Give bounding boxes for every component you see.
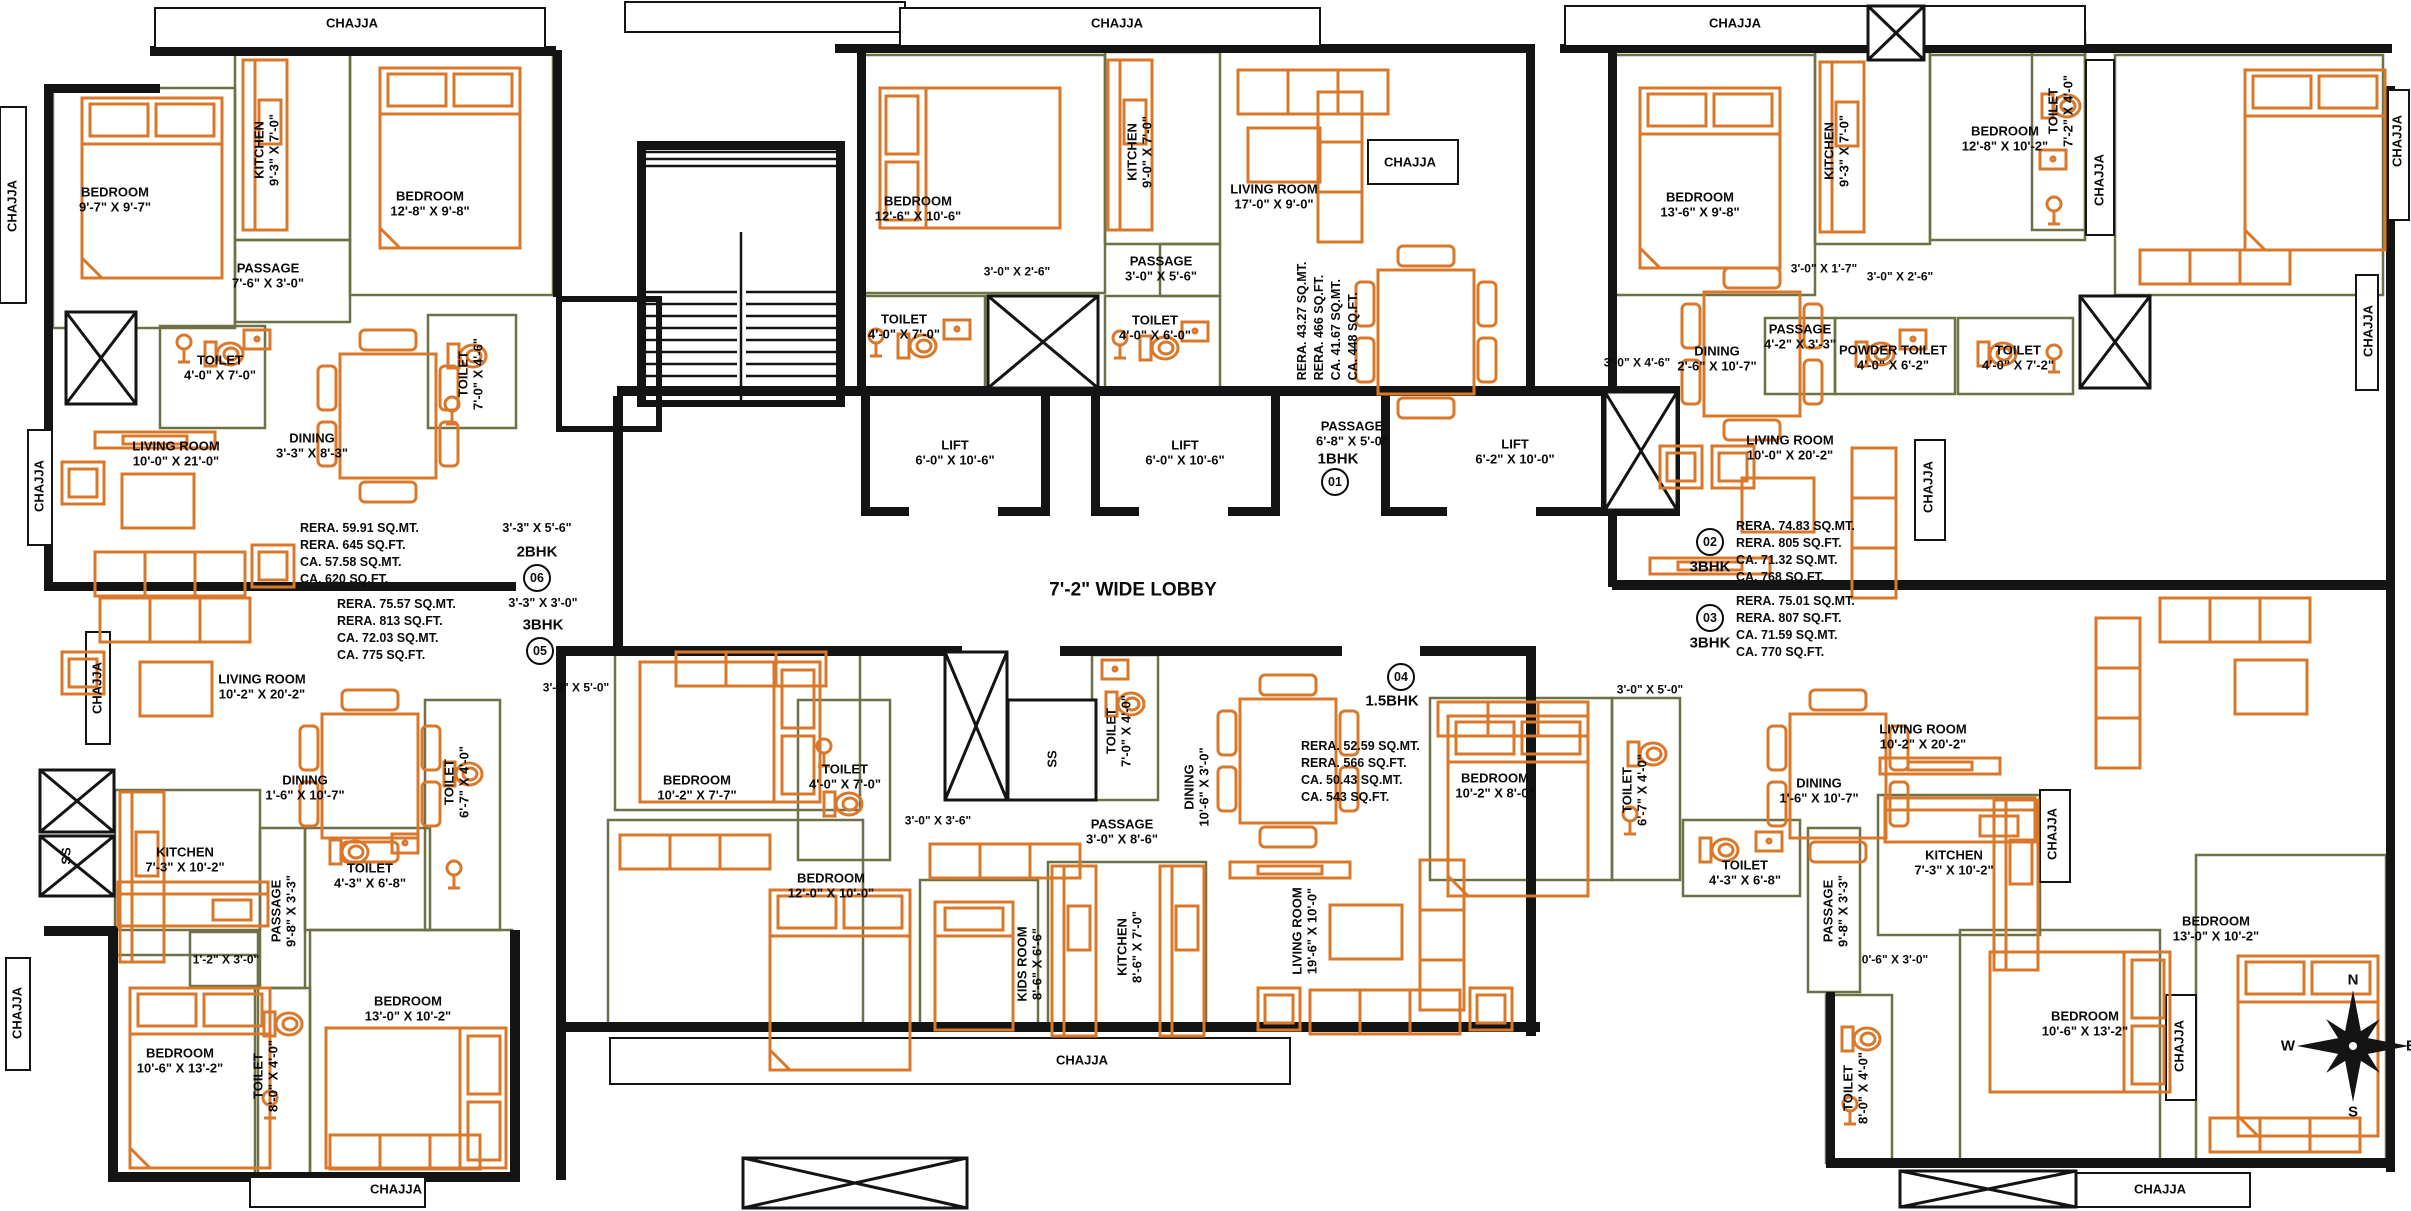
room-toilet: TOILET8'-0" X 4'-0": [1841, 1052, 1870, 1124]
room-toilet: TOILET4'-3" X 6'-8": [1709, 858, 1781, 887]
unit-type-01: 1BHK: [1318, 451, 1359, 468]
lobby-label: 7'-2" WIDE LOBBY: [1049, 579, 1217, 600]
dim: 3'-0" X 3'-6": [905, 814, 971, 827]
chajja: CHAJJA: [2362, 305, 2377, 357]
unit-type-04: 1.5BHK: [1365, 693, 1418, 710]
dim: 1'-2" X 3'-0": [193, 953, 259, 966]
room-living: LIVING ROOM10'-2" X 20'-2": [1879, 722, 1966, 751]
dim: 3'-0" X 5'-0": [1617, 683, 1683, 696]
room-living: LIVING ROOM10'-0" X 21'-0": [132, 439, 219, 468]
unit-type-02: 3BHK: [1690, 559, 1731, 576]
compass-south: S: [2348, 1104, 2358, 1121]
chajja: CHAJJA: [1091, 17, 1143, 32]
unit-entry-dim-05: 3'-3" X 3'-0": [508, 596, 577, 610]
shaft-ss: SS: [60, 847, 75, 864]
chajja: CHAJJA: [2391, 115, 2406, 167]
room-passage: PASSAGE9'-8" X 3'-3": [1821, 875, 1850, 947]
room-kitchen: KITCHEN7'-3" X 10'-2": [145, 845, 224, 874]
room-bedroom: BEDROOM13'-0" X 10'-2": [365, 994, 451, 1023]
unit-areas-02: RERA. 74.83 SQ.MT.RERA. 805 SQ.FT.CA. 71…: [1736, 518, 1855, 586]
room-bedroom: BEDROOM12'-8" X 9'-8": [390, 189, 469, 218]
unit-type-06: 2BHK: [517, 544, 558, 561]
unit-type-05: 3BHK: [523, 617, 564, 634]
room-kitchen: KITCHEN7'-3" X 10'-2": [1914, 848, 1993, 877]
dim: 3'-0" X 1'-7": [1791, 262, 1857, 275]
room-bedroom: BEDROOM12'-8" X 10'-2": [1962, 124, 2048, 153]
room-living: LIVING ROOM19'-6" X 10'-0": [1290, 887, 1319, 974]
compass-east: E: [2406, 1038, 2411, 1055]
chajja: CHAJJA: [1922, 461, 1937, 513]
room-kitchen: KITCHEN8'-6" X 7'-0": [1115, 911, 1144, 983]
room-dining: DINING1'-6" X 10'-7": [265, 773, 344, 802]
chajja: CHAJJA: [1056, 1054, 1108, 1069]
room-living: LIVING ROOM17'-0" X 9'-0": [1230, 182, 1317, 211]
compass-north: N: [2348, 972, 2359, 989]
room-toilet: TOILET4'-0" X 6'-0": [1119, 313, 1191, 342]
room-living: LIVING ROOM10'-0" X 20'-2": [1746, 433, 1833, 462]
unit-number-02: 02: [1696, 528, 1724, 556]
chajja: CHAJJA: [2046, 808, 2061, 860]
room-toilet: POWDER TOILET4'-0" X 6'-2": [1839, 343, 1947, 372]
room-bedroom: BEDROOM10'-6" X 13'-2": [137, 1046, 223, 1075]
dim: 0'-6" X 3'-0": [1862, 953, 1928, 966]
room-bedroom: BEDROOM12'-0" X 10'-0": [788, 871, 874, 900]
room-dining: DINING2'-6" X 10'-7": [1677, 344, 1756, 373]
room-toilet: TOILET7'-0" X 4'-6": [456, 338, 485, 410]
dim: 3'-0" X 2'-6": [984, 265, 1050, 278]
room-toilet: TOILET7'-0" X 4'-0": [1104, 695, 1133, 767]
unit-number-06: 06: [523, 564, 551, 592]
room-toilet: TOILET6'-7" X 4'-0": [1620, 754, 1649, 826]
room-kitchen: KITCHEN9'-3" X 7'-0": [1822, 115, 1851, 187]
room-bedroom: BEDROOM12'-6" X 10'-6": [875, 194, 961, 223]
room-dining: DINING3'-3" X 8'-3": [276, 431, 348, 460]
dim: 3'-0" X 4'-6": [1604, 356, 1670, 369]
unit-areas-05: RERA. 75.57 SQ.MT.RERA. 813 SQ.FT.CA. 72…: [337, 596, 456, 664]
room-kids: KIDS ROOM8'-6" X 6'-6": [1015, 926, 1044, 1001]
unit-entry-dim-06: 3'-3" X 5'-6": [502, 521, 571, 535]
compass-west: W: [2281, 1038, 2295, 1055]
room-dining: DINING1'-6" X 10'-7": [1779, 776, 1858, 805]
room-living: LIVING ROOM10'-2" X 20'-2": [218, 672, 305, 701]
room-bedroom: BEDROOM10'-6" X 13'-2": [2042, 1009, 2128, 1038]
label-layer: 7'-2" WIDE LOBBY N S W E CHAJJACHAJJACHA…: [0, 0, 2411, 1211]
chajja: CHAJJA: [33, 460, 48, 512]
unit-number-04: 04: [1387, 663, 1415, 691]
chajja: CHAJJA: [6, 180, 21, 232]
room-passage: PASSAGE3'-0" X 8'-6": [1086, 817, 1158, 846]
room-toilet: TOILET4'-0" X 7'-2": [1982, 343, 2054, 372]
room-bedroom: BEDROOM13'-6" X 9'-8": [1660, 190, 1739, 219]
room-bedroom: BEDROOM9'-7" X 9'-7": [79, 185, 151, 214]
room-bedroom: BEDROOM13'-0" X 10'-2": [2173, 914, 2259, 943]
room-toilet: TOILET8'-0" X 4'-0": [251, 1040, 280, 1112]
unit-areas-03: RERA. 75.01 SQ.MT.RERA. 807 SQ.FT.CA. 71…: [1736, 593, 1855, 661]
dim: 3'-0" X 5'-0": [543, 681, 609, 694]
unit-number-03: 03: [1696, 604, 1724, 632]
unit-areas-04: RERA. 52.59 SQ.MT.RERA. 566 SQ.FT.CA. 50…: [1301, 738, 1420, 806]
room-kitchen: KITCHEN9'-3" X 7'-0": [252, 114, 281, 186]
room-toilet: TOILET4'-3" X 6'-8": [334, 861, 406, 890]
chajja: CHAJJA: [91, 662, 106, 714]
room-bedroom: BEDROOM10'-2" X 7'-7": [657, 773, 736, 802]
unit-type-03: 3BHK: [1690, 635, 1731, 652]
chajja: CHAJJA: [11, 987, 26, 1039]
room-toilet: TOILET4'-0" X 7'-0": [184, 353, 256, 382]
unit-areas-01: RERA. 43.27 SQ.MT.RERA. 466 SQ.FT.CA. 41…: [1294, 262, 1362, 381]
chajja: CHAJJA: [1709, 17, 1761, 32]
unit-number-01: 01: [1321, 468, 1349, 496]
chajja: CHAJJA: [1384, 156, 1436, 171]
lift: LIFT6'-0" X 10'-6": [915, 438, 994, 467]
room-passage: PASSAGE6'-8" X 5'-0": [1316, 419, 1388, 448]
room-passage: PASSAGE4'-2" X 3'-3": [1764, 322, 1836, 351]
room-passage: PASSAGE9'-8" X 3'-3": [269, 875, 298, 947]
chajja: CHAJJA: [2173, 1020, 2188, 1072]
room-toilet: TOILET6'-7" X 4'-0": [442, 746, 471, 818]
room-dining: DINING10'-6" X 3'-0": [1182, 747, 1211, 826]
dim: 3'-0" X 2'-6": [1867, 270, 1933, 283]
chajja: CHAJJA: [2093, 154, 2108, 206]
room-passage: PASSAGE7'-6" X 3'-0": [232, 261, 304, 290]
room-kitchen: KITCHEN9'-0" X 7'-0": [1125, 116, 1154, 188]
floor-plan: 7'-2" WIDE LOBBY N S W E CHAJJACHAJJACHA…: [0, 0, 2411, 1211]
shaft-ss: SS: [1046, 750, 1061, 767]
unit-areas-06: RERA. 59.91 SQ.MT.RERA. 645 SQ.FT.CA. 57…: [300, 520, 419, 588]
room-passage: PASSAGE3'-0" X 5'-6": [1125, 254, 1197, 283]
room-toilet: TOILET4'-0" X 7'-0": [809, 762, 881, 791]
chajja: CHAJJA: [326, 17, 378, 32]
room-toilet: TOILET4'-0" X 7'-0": [868, 312, 940, 341]
lift: LIFT6'-0" X 10'-6": [1145, 438, 1224, 467]
room-toilet: TOILET7'-2" X 4'-0": [2046, 75, 2075, 147]
chajja: CHAJJA: [370, 1183, 422, 1198]
lift: LIFT6'-2" X 10'-0": [1475, 437, 1554, 466]
room-bedroom: BEDROOM10'-2" X 8'-0": [1455, 771, 1534, 800]
unit-number-05: 05: [526, 637, 554, 665]
chajja: CHAJJA: [2134, 1183, 2186, 1198]
